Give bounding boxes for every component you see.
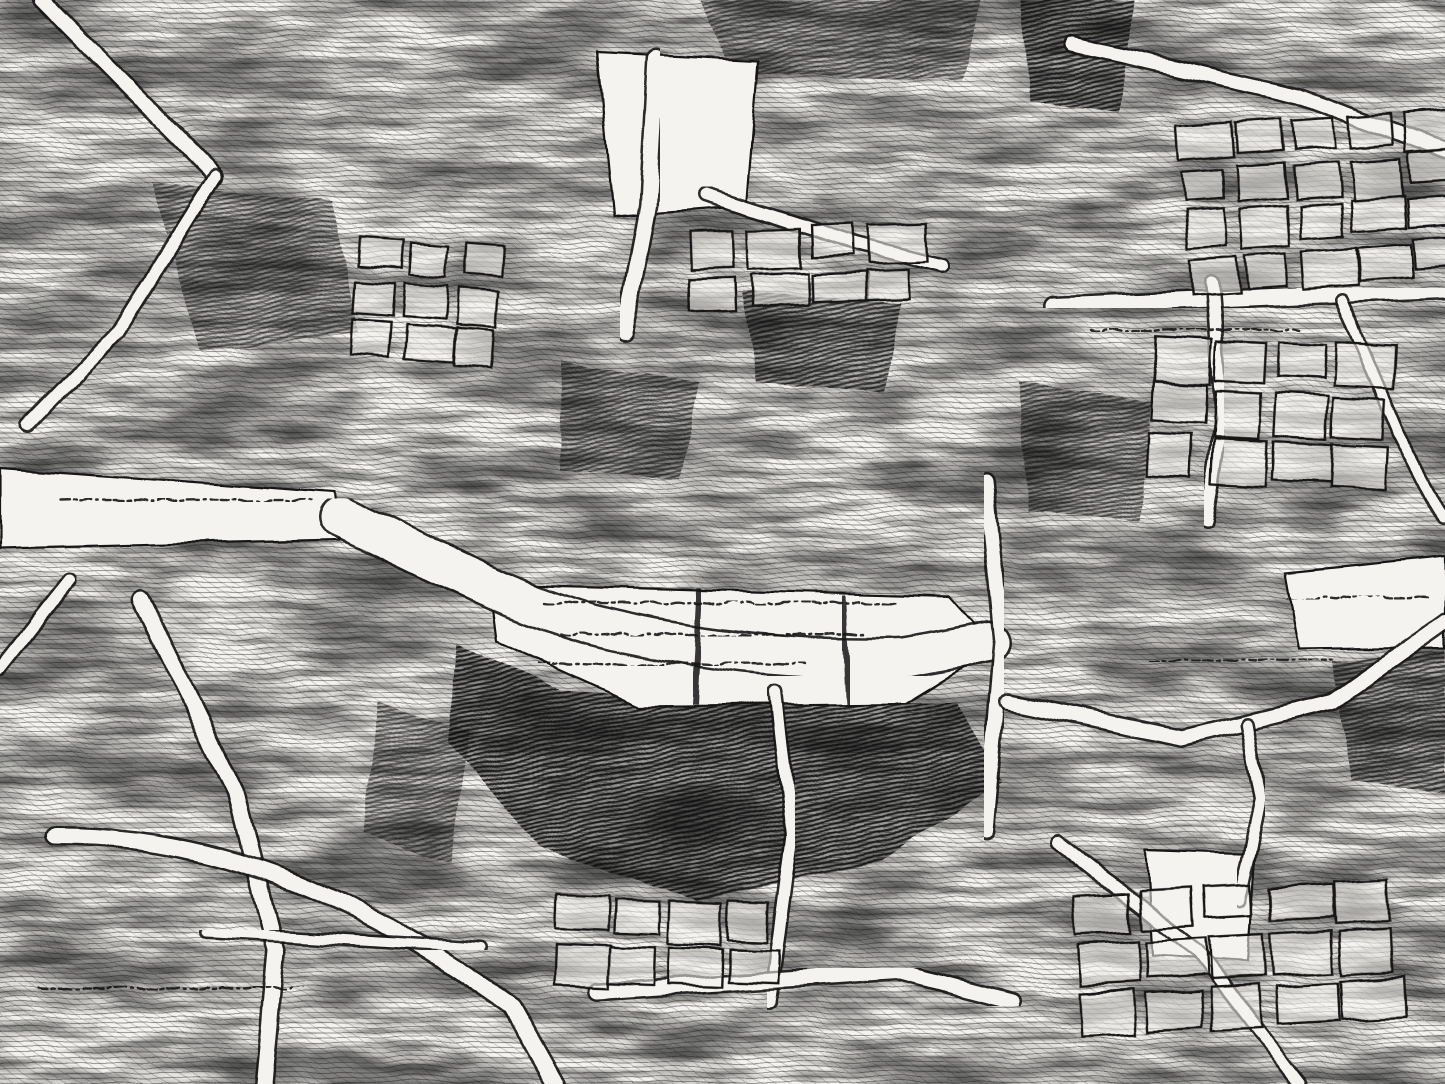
masse-nord-centre-ouest-hatch [560,362,700,478]
city-block [1209,934,1266,979]
city-block [752,273,809,307]
city-block [1292,119,1335,150]
city-block [1268,885,1334,920]
city-block [556,894,609,930]
city-block [811,224,854,257]
city-block [668,947,722,987]
city-block [690,277,737,312]
map-canvas [0,0,1445,1084]
city-block [1182,170,1224,201]
city-block [352,281,394,316]
city-block [1177,122,1234,161]
city-block [1212,439,1268,487]
city-block [1332,397,1384,439]
city-block [1139,888,1194,928]
city-block [1078,941,1140,985]
city-block [1236,120,1283,153]
city-block [1292,162,1341,200]
city-block [668,901,722,946]
city-block [1185,208,1226,247]
city-block [1334,879,1390,923]
city-block [409,243,447,277]
ilots-ouest [349,236,503,368]
city-block [1215,341,1266,384]
city-block [402,283,447,319]
city-block [1277,343,1325,379]
city-block [1145,938,1207,978]
city-block [350,319,391,356]
city-block [727,901,768,942]
city-block [1402,110,1445,152]
city-block [456,289,499,326]
city-block [1213,391,1261,439]
city-block [404,324,456,361]
city-block [609,947,654,985]
city-block [1241,206,1289,248]
city-block [1302,247,1359,288]
city-block [1080,990,1136,1036]
city-block [1414,235,1445,269]
city-block [748,229,800,270]
city-block [1246,252,1287,288]
city-block [1357,244,1414,281]
city-block [357,237,405,269]
city-block [1299,204,1344,238]
city-block [1146,990,1203,1030]
city-block [729,949,780,983]
ilots-sud-est [1074,876,1406,1038]
city-block [1204,884,1252,917]
city-block [1237,163,1286,203]
city-block [1155,336,1212,384]
city-block [1271,442,1332,483]
city-block [868,223,928,264]
masse-est-centrale-hatch [1018,382,1152,522]
city-block [1190,256,1239,296]
city-block [613,900,660,935]
city-block [1330,444,1388,490]
clearing-north-place [598,52,758,216]
city-block [1340,978,1405,1020]
stylized-city-map [0,0,1445,1084]
city-block [1340,928,1393,975]
city-block [454,327,494,368]
city-block [1274,393,1329,439]
city-block [812,273,870,302]
city-block [1074,894,1129,935]
city-block [1351,196,1407,230]
city-block [1147,433,1193,478]
city-block [1276,983,1339,1024]
city-block [1152,382,1206,424]
city-block [1349,113,1391,147]
city-block [465,243,504,276]
city-block [690,230,734,268]
city-block [1408,150,1445,184]
city-block [1352,159,1403,201]
city-block [555,944,611,989]
city-block [867,270,910,300]
city-block [1408,196,1445,226]
city-block [1210,985,1262,1031]
city-block [1271,930,1334,976]
city-block [1334,343,1395,389]
